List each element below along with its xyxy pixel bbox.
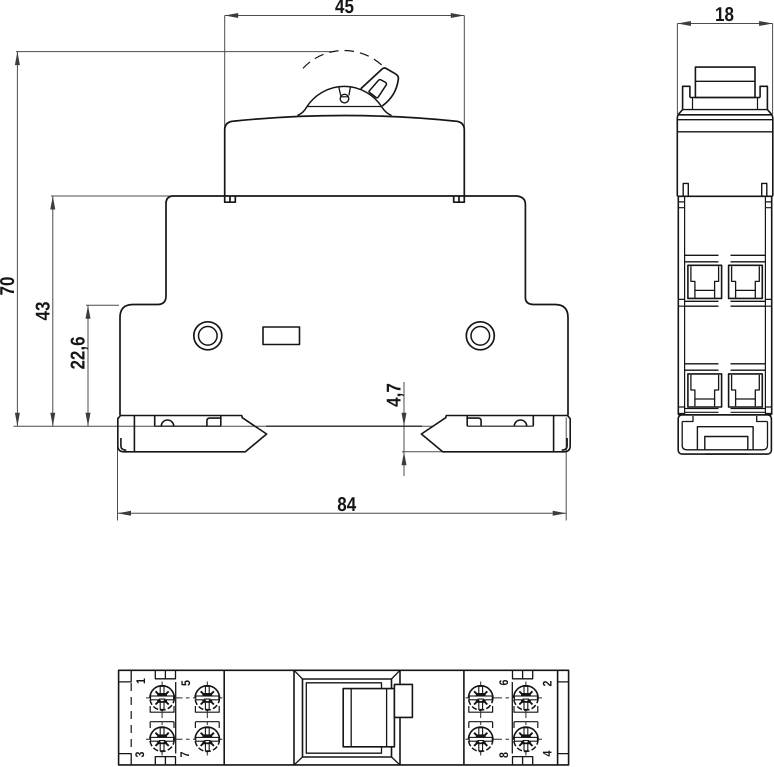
svg-text:2: 2 (541, 681, 555, 687)
svg-text:18: 18 (715, 4, 734, 26)
svg-text:4,7: 4,7 (384, 383, 406, 407)
svg-text:70: 70 (0, 277, 19, 296)
svg-text:6: 6 (497, 680, 511, 686)
svg-text:1: 1 (134, 678, 148, 684)
svg-text:43: 43 (33, 302, 55, 321)
svg-text:45: 45 (335, 0, 354, 18)
svg-text:22,6: 22,6 (68, 336, 90, 369)
svg-text:84: 84 (337, 494, 357, 516)
svg-text:3: 3 (133, 752, 147, 758)
svg-text:5: 5 (179, 680, 193, 686)
svg-text:7: 7 (178, 752, 192, 758)
svg-text:4: 4 (541, 751, 555, 757)
svg-text:8: 8 (497, 752, 511, 758)
